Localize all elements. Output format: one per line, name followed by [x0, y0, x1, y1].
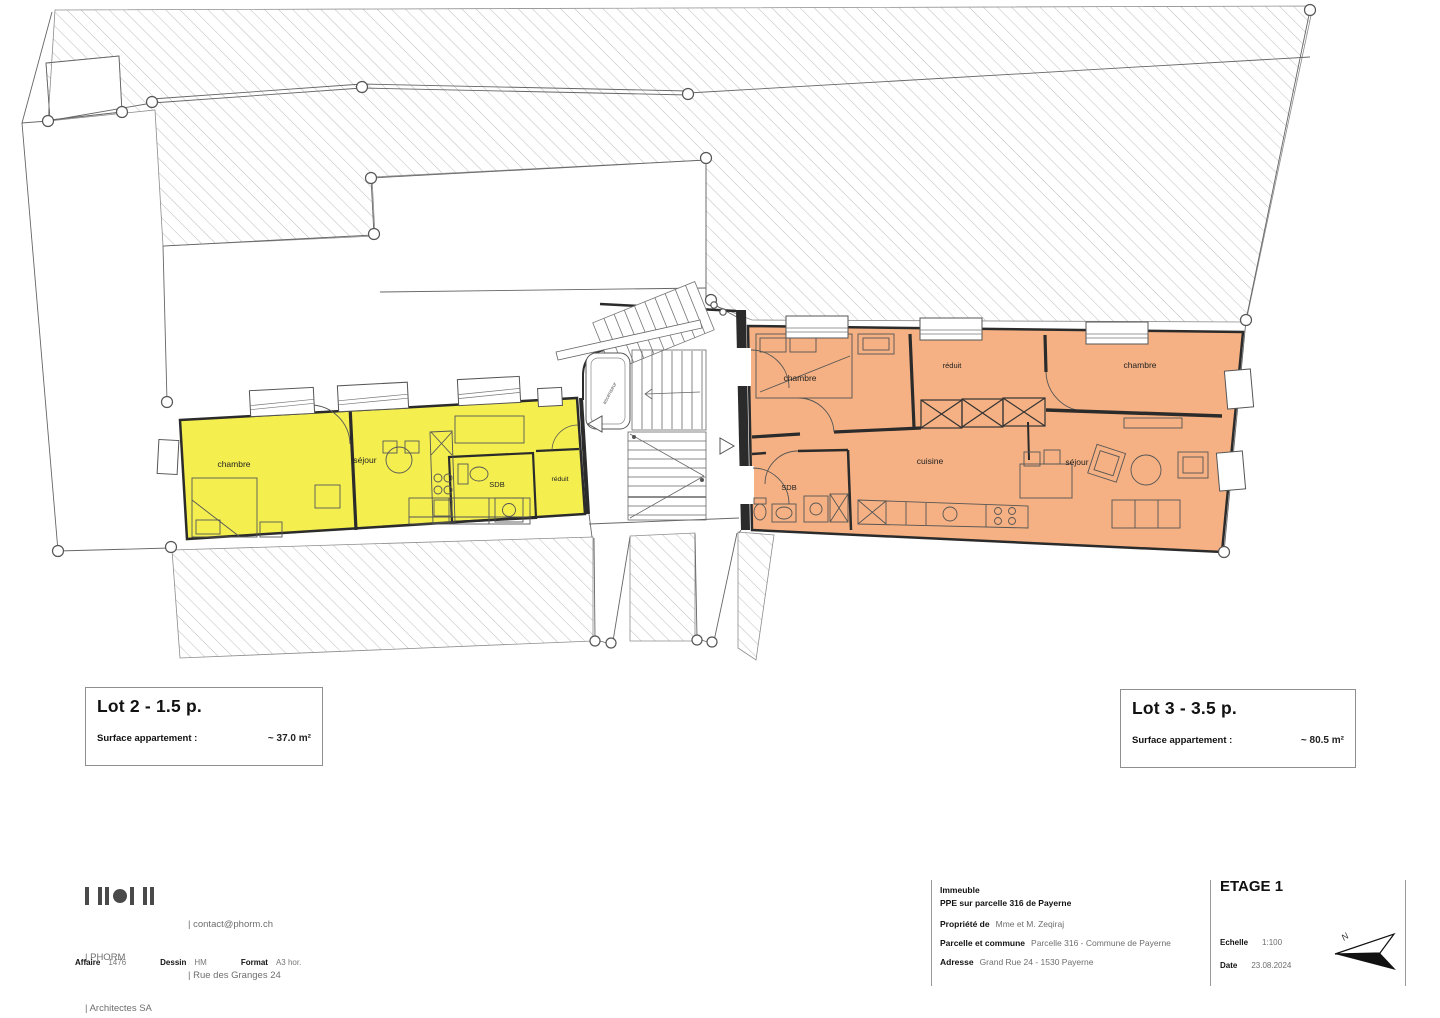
- titleblock-divider-1: [931, 880, 932, 986]
- sheet-title: ETAGE 1: [1220, 878, 1400, 895]
- parcel-label: Parcelle et commune: [940, 938, 1025, 948]
- lot3-surface-value: ~ 80.5 m²: [1301, 735, 1344, 746]
- owner-label: Propriété de: [940, 919, 990, 929]
- lot3-surface-label: Surface appartement :: [1132, 735, 1232, 746]
- affaire-value: 1476: [108, 958, 126, 967]
- address-value: Grand Rue 24 - 1530 Payerne: [980, 957, 1094, 967]
- label-lot2-sejour: séjour: [353, 455, 376, 465]
- titleblock-divider-2: [1210, 880, 1211, 986]
- north-label: N: [1339, 930, 1350, 942]
- apartment-lot3: [735, 310, 1254, 552]
- dessin-label: Dessin: [160, 958, 186, 967]
- phorm-logo-icon: [85, 886, 157, 906]
- parcel-value: Parcelle 316 - Commune de Payerne: [1031, 938, 1171, 948]
- drawing-meta-row: Affaire1476 DessinHM FormatA3 hor.: [75, 958, 335, 967]
- floor-plan-svg: chambre séjour SDB réduit chambre réduit…: [0, 0, 1440, 672]
- affaire-label: Affaire: [75, 958, 100, 967]
- north-arrow-icon: N: [1330, 926, 1402, 978]
- firm-contact-email: | contact@phorm.ch: [188, 916, 281, 933]
- format-label: Format: [241, 958, 268, 967]
- owner-value: Mme et M. Zeqiraj: [996, 919, 1065, 929]
- sheet-block: ETAGE 1 Echelle1:100 Date23.08.2024: [1220, 878, 1400, 895]
- lot3-title: Lot 3 - 3.5 p.: [1132, 698, 1344, 719]
- firm-contact-street: | Rue des Granges 24: [188, 967, 281, 984]
- firm-name-line2: | Architectes SA: [85, 1000, 152, 1017]
- date-label: Date: [1220, 961, 1237, 970]
- label-lot2-reduit: réduit: [551, 476, 568, 483]
- label-lot3-cuisine: cuisine: [917, 456, 944, 466]
- lot2-title: Lot 2 - 1.5 p.: [97, 696, 311, 717]
- label-lot2-sdb: SDB: [489, 480, 504, 489]
- lot2-surface-label: Surface appartement :: [97, 733, 197, 744]
- lot3-info-box: Lot 3 - 3.5 p. Surface appartement : ~ 8…: [1120, 689, 1356, 768]
- label-lot3-sejour: séjour: [1065, 457, 1088, 467]
- label-lot3-chambre1: chambre: [783, 373, 816, 383]
- format-value: A3 hor.: [276, 958, 301, 967]
- address-label: Adresse: [940, 957, 974, 967]
- project-block: Immeuble PPE sur parcelle 316 de Payerne…: [940, 884, 1200, 967]
- label-lot2-chambre: chambre: [217, 459, 250, 469]
- scale-value: 1:100: [1262, 938, 1282, 947]
- date-value: 23.08.2024: [1251, 961, 1291, 970]
- project-type: Immeuble: [940, 884, 1200, 897]
- scale-label: Echelle: [1220, 938, 1248, 947]
- project-title: PPE sur parcelle 316 de Payerne: [940, 897, 1200, 910]
- label-lot3-sdb: SDB: [781, 483, 796, 492]
- titleblock-divider-3: [1405, 880, 1406, 986]
- label-lot3-chambre2: chambre: [1123, 360, 1156, 370]
- lot2-info-box: Lot 2 - 1.5 p. Surface appartement : ~ 3…: [85, 687, 323, 766]
- lot2-surface-value: ~ 37.0 m²: [268, 733, 311, 744]
- label-lot3-reduit: réduit: [943, 361, 963, 370]
- dessin-value: HM: [194, 958, 206, 967]
- drawing-sheet: chambre séjour SDB réduit chambre réduit…: [0, 0, 1440, 1018]
